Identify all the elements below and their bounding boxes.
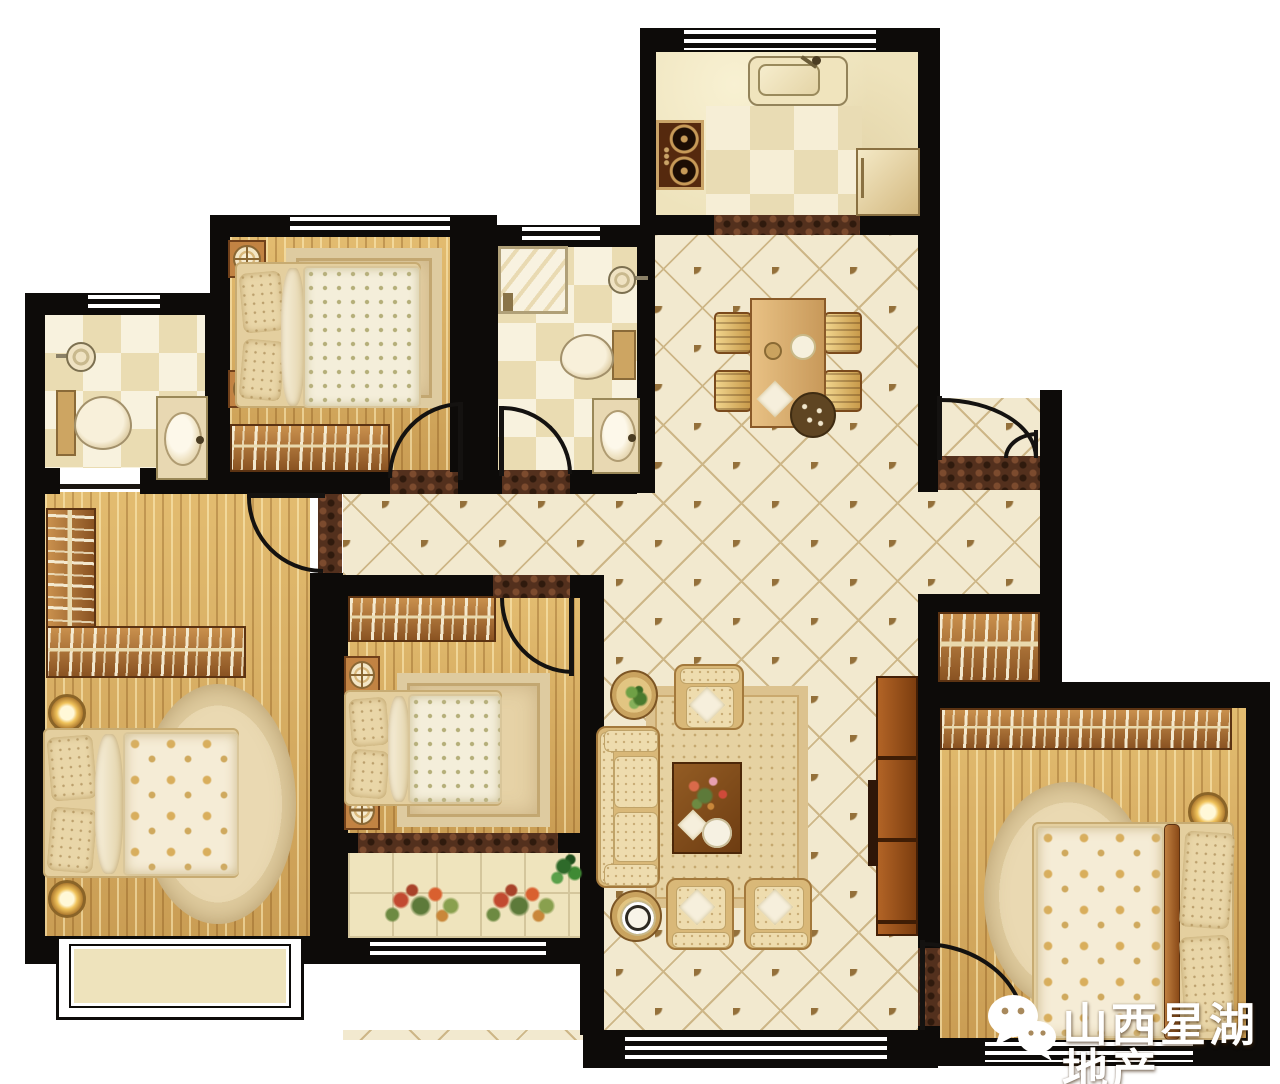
pillow xyxy=(238,338,285,401)
wall xyxy=(25,293,45,492)
sofa-armrest xyxy=(604,730,658,752)
window xyxy=(625,1037,887,1059)
door-leaf xyxy=(499,406,504,476)
pillow xyxy=(46,734,97,802)
blanket-fold xyxy=(95,734,123,874)
blanket-fold xyxy=(388,696,410,802)
side-table xyxy=(610,670,658,720)
dining-chair xyxy=(714,312,752,354)
wall xyxy=(330,575,493,598)
nightstand-lamp xyxy=(344,656,380,694)
wall xyxy=(860,215,920,235)
entry-door-leaf xyxy=(1034,430,1038,458)
bay-window xyxy=(56,936,304,1020)
dining-chair xyxy=(824,312,862,354)
bay-window-frame xyxy=(69,944,291,1008)
plate xyxy=(790,334,816,360)
bay-window-sill xyxy=(74,949,286,1003)
coffee-table xyxy=(672,762,742,854)
outside-area xyxy=(940,228,1062,398)
bed xyxy=(235,262,421,408)
wardrobe xyxy=(230,424,390,472)
wall xyxy=(918,412,938,492)
wall xyxy=(330,833,358,853)
wall xyxy=(918,690,940,948)
wall xyxy=(205,293,230,470)
armchair xyxy=(744,878,812,950)
nightstand-lamp xyxy=(48,694,86,732)
entry-door-leaf xyxy=(937,396,942,460)
outside-area xyxy=(330,964,583,1030)
toilet-tank xyxy=(612,330,636,380)
pillow xyxy=(1179,830,1236,929)
threshold xyxy=(714,215,860,235)
watermark-text: 山西星湖地产 xyxy=(1062,1002,1272,1054)
faucet-icon xyxy=(628,434,636,442)
master-bed xyxy=(43,728,239,878)
serving-platter xyxy=(790,392,836,438)
flower-pots xyxy=(382,874,468,932)
faucet-icon xyxy=(196,436,204,444)
kitchen-tile-area xyxy=(706,106,862,215)
window xyxy=(522,227,600,245)
pillow xyxy=(348,696,390,747)
armchair-back xyxy=(680,668,740,684)
wall xyxy=(310,573,332,960)
armchair xyxy=(674,664,744,730)
bed xyxy=(344,690,502,806)
pillow xyxy=(46,806,97,874)
window xyxy=(370,942,546,960)
dining-table xyxy=(750,298,826,428)
wall xyxy=(480,225,498,474)
corner-plant xyxy=(544,848,588,894)
armchair xyxy=(666,878,734,950)
wechat-icon-glyph xyxy=(986,992,1060,1062)
window xyxy=(88,295,160,313)
window xyxy=(684,30,876,50)
wardrobe xyxy=(46,508,96,634)
threshold xyxy=(358,833,558,853)
wardrobe xyxy=(348,596,496,642)
sofa xyxy=(596,726,660,888)
sofa-cushion xyxy=(614,756,658,808)
tv-screen xyxy=(868,780,878,866)
wardrobe xyxy=(46,626,246,678)
bathroom-vanity xyxy=(156,396,208,480)
refrigerator xyxy=(856,148,920,216)
door-leaf xyxy=(569,598,574,676)
door-leaf xyxy=(458,402,463,480)
shower-head-icon xyxy=(66,342,96,372)
wall xyxy=(210,470,390,494)
wall xyxy=(918,682,1270,708)
shower-fixture-icon xyxy=(503,293,513,311)
blanket-fold xyxy=(281,268,305,406)
wall xyxy=(918,28,940,412)
kitchen-sink xyxy=(748,56,848,106)
potted-plant xyxy=(618,678,654,716)
floor-plan: 山西星湖地产 xyxy=(0,0,1280,1084)
wall xyxy=(25,468,45,962)
sofa-back xyxy=(600,732,614,884)
tea-tray xyxy=(702,818,732,848)
napkin xyxy=(757,381,794,418)
toilet-tank xyxy=(56,390,76,456)
wardrobe xyxy=(940,708,1232,750)
armchair-back xyxy=(672,932,730,948)
door-leaf xyxy=(920,940,925,1030)
blanket xyxy=(123,732,239,876)
cooktop xyxy=(656,120,704,190)
wechat-icon xyxy=(986,992,1060,1062)
threshold xyxy=(493,575,570,598)
blanket xyxy=(303,266,421,408)
sofa-armrest xyxy=(604,864,658,886)
dining-chair xyxy=(714,370,752,412)
faucet-knob-icon xyxy=(812,56,821,65)
nightstand-lamp xyxy=(48,880,86,918)
entry-threshold xyxy=(938,456,1040,490)
sofa-cushion xyxy=(614,812,658,862)
bathroom-vanity xyxy=(592,398,640,474)
toilet-bowl xyxy=(74,396,132,450)
shower-arm-icon xyxy=(634,276,648,280)
pillow xyxy=(238,270,285,333)
door-leaf xyxy=(247,493,325,498)
armchair-back xyxy=(750,932,808,948)
side-table xyxy=(610,890,662,942)
plate xyxy=(764,342,782,360)
blanket xyxy=(408,694,502,804)
entry-closet xyxy=(938,612,1040,682)
decorative-plate xyxy=(622,902,654,934)
wall xyxy=(1040,390,1062,700)
shower-head-icon xyxy=(608,266,636,294)
door-leaf xyxy=(60,484,140,489)
shower-enclosure xyxy=(498,246,568,314)
pillow xyxy=(348,748,390,799)
flower-centerpiece xyxy=(676,768,736,816)
tv-cabinet xyxy=(876,676,918,936)
window xyxy=(290,217,450,235)
wall xyxy=(640,28,656,235)
toilet-bowl xyxy=(560,334,614,380)
